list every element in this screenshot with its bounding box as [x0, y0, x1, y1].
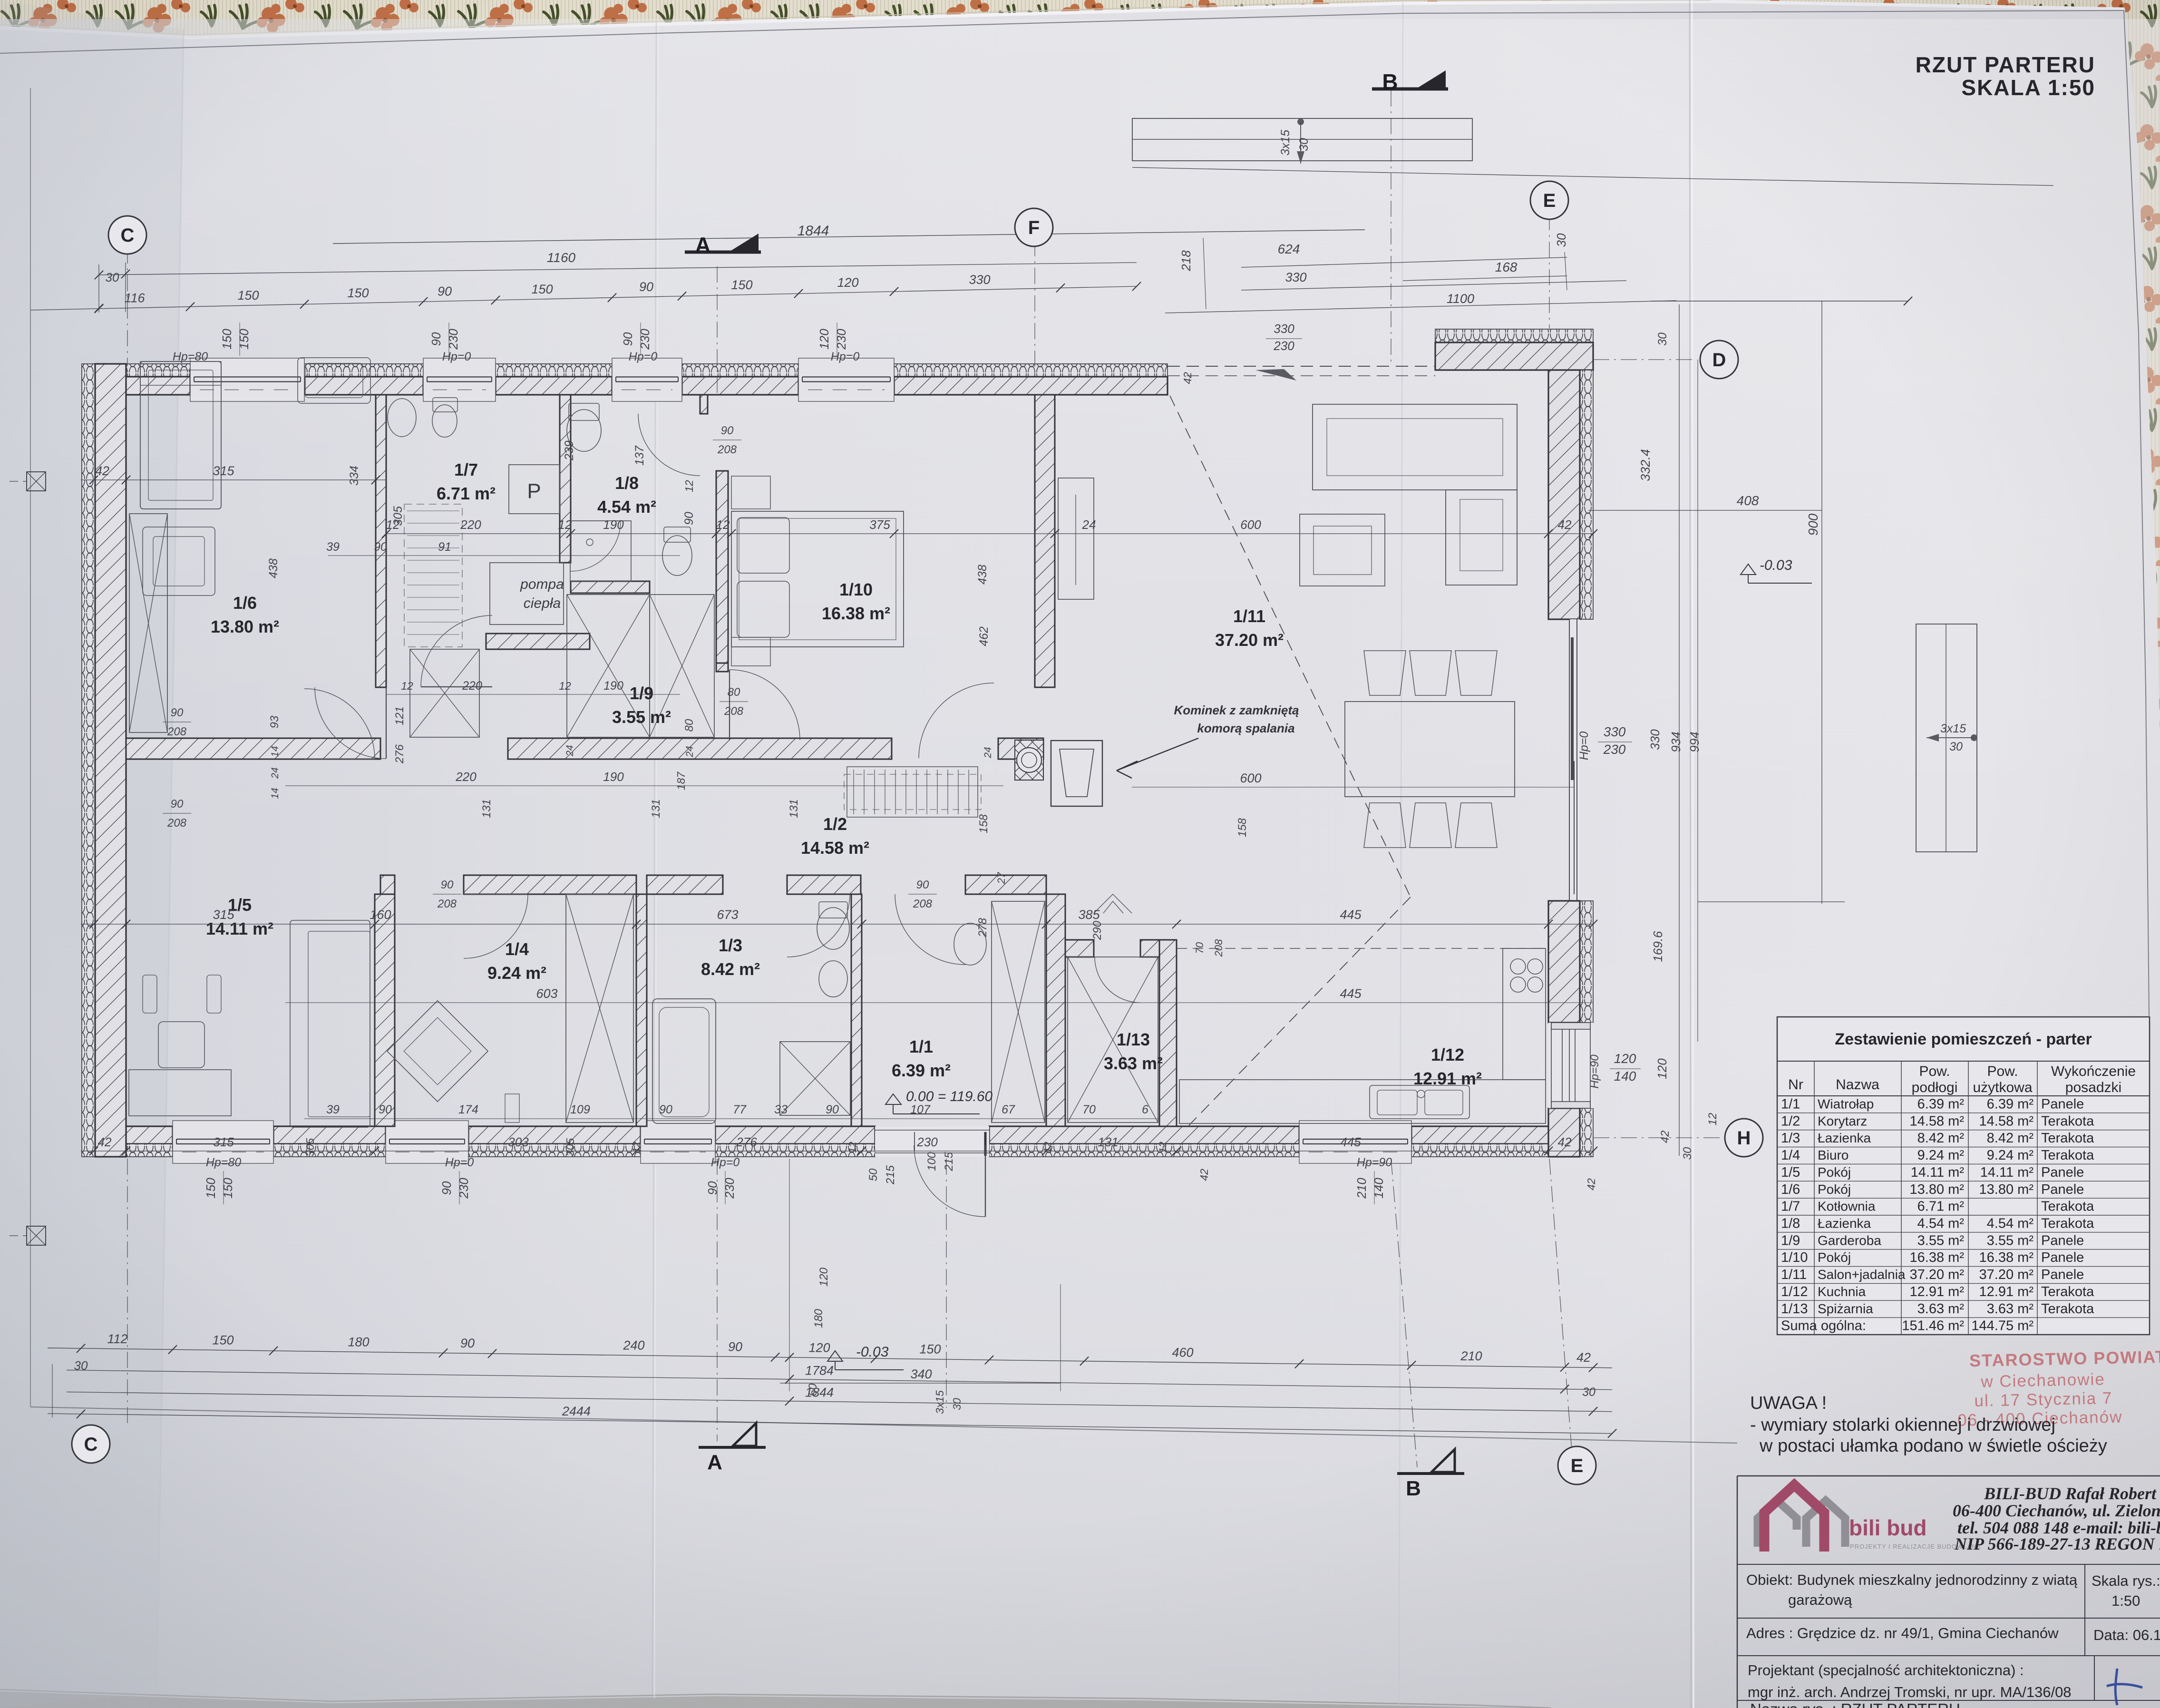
svg-text:6.71 m²: 6.71 m² — [437, 484, 496, 503]
svg-text:BILI-BUD Rafał Robert Biliński: BILI-BUD Rafał Robert Biliński — [1984, 1484, 2160, 1503]
svg-text:1844: 1844 — [805, 1386, 834, 1400]
svg-text:UWAGA !: UWAGA ! — [1750, 1393, 1827, 1413]
svg-text:30: 30 — [1582, 1386, 1596, 1399]
svg-text:208: 208 — [717, 443, 737, 456]
svg-text:24: 24 — [564, 745, 575, 756]
svg-text:4.54 m²: 4.54 m² — [1917, 1216, 1965, 1231]
svg-text:Hp=80: Hp=80 — [173, 350, 208, 363]
svg-text:3x15: 3x15 — [934, 1390, 946, 1414]
svg-text:A: A — [707, 1451, 722, 1474]
svg-text:150: 150 — [220, 329, 234, 350]
svg-text:215: 215 — [884, 1165, 897, 1185]
svg-text:Hp=0: Hp=0 — [629, 350, 658, 363]
svg-text:12: 12 — [1042, 1142, 1053, 1153]
svg-text:14: 14 — [270, 788, 281, 799]
svg-text:215: 215 — [943, 1152, 955, 1171]
svg-text:460: 460 — [1172, 1345, 1193, 1359]
svg-text:462: 462 — [977, 626, 991, 646]
svg-text:39: 39 — [326, 540, 340, 554]
svg-text:1/2: 1/2 — [1781, 1113, 1800, 1129]
svg-text:208: 208 — [437, 898, 457, 910]
svg-text:-0.03: -0.03 — [856, 1344, 889, 1360]
svg-text:27: 27 — [995, 872, 1007, 884]
svg-text:305: 305 — [304, 1138, 316, 1157]
svg-text:6.71 m²: 6.71 m² — [1917, 1199, 1965, 1214]
svg-text:315: 315 — [213, 464, 234, 478]
svg-text:Łazienka: Łazienka — [1818, 1216, 1871, 1231]
svg-text:12: 12 — [558, 517, 572, 532]
svg-text:240: 240 — [623, 1338, 644, 1353]
svg-text:12: 12 — [401, 680, 413, 692]
svg-text:150: 150 — [221, 1178, 235, 1199]
svg-text:D: D — [1712, 350, 1726, 371]
svg-text:445: 445 — [1340, 986, 1362, 1001]
svg-text:F: F — [1028, 217, 1040, 238]
svg-text:Łazienka: Łazienka — [1818, 1131, 1871, 1145]
svg-text:30: 30 — [1949, 740, 1963, 753]
svg-text:H: H — [1737, 1128, 1751, 1149]
svg-text:230: 230 — [1273, 339, 1294, 353]
svg-text:użytkowa: użytkowa — [1973, 1080, 2032, 1095]
svg-text:13.80 m²: 13.80 m² — [1910, 1182, 1965, 1197]
svg-text:42: 42 — [98, 1135, 112, 1149]
svg-text:131: 131 — [480, 799, 493, 818]
svg-text:140: 140 — [1372, 1178, 1386, 1199]
svg-text:107: 107 — [910, 1103, 931, 1116]
svg-text:C: C — [121, 225, 135, 246]
svg-text:150: 150 — [919, 1342, 941, 1357]
svg-text:112: 112 — [107, 1332, 127, 1346]
svg-text:276: 276 — [736, 1135, 757, 1149]
svg-text:30: 30 — [1297, 138, 1311, 151]
svg-text:2444: 2444 — [562, 1404, 591, 1418]
svg-text:42: 42 — [1558, 1135, 1572, 1149]
svg-text:37.20 m²: 37.20 m² — [1215, 630, 1284, 650]
svg-text:B: B — [1406, 1477, 1421, 1500]
svg-text:24: 24 — [1082, 517, 1096, 532]
svg-text:Terakota: Terakota — [2041, 1199, 2094, 1214]
svg-text:208: 208 — [167, 817, 187, 830]
svg-text:1:50: 1:50 — [2111, 1592, 2140, 1609]
svg-text:91: 91 — [438, 540, 451, 554]
svg-text:6.39 m²: 6.39 m² — [1987, 1097, 2034, 1112]
svg-text:109: 109 — [570, 1103, 590, 1116]
svg-text:230: 230 — [446, 329, 460, 350]
svg-text:06-400 Ciechanów, ul. Zielona: 06-400 Ciechanów, ul. Zielona Ścieżka — [1953, 1501, 2160, 1520]
svg-text:90: 90 — [429, 332, 443, 346]
svg-text:9.24 m²: 9.24 m² — [1987, 1148, 2034, 1163]
svg-text:120: 120 — [1614, 1051, 1636, 1066]
svg-text:4.54 m²: 4.54 m² — [597, 497, 656, 517]
svg-text:Terakota: Terakota — [2041, 1301, 2094, 1317]
svg-text:9.24 m²: 9.24 m² — [487, 963, 546, 983]
svg-text:120: 120 — [817, 329, 831, 350]
svg-text:121: 121 — [393, 706, 406, 725]
svg-text:3.55 m²: 3.55 m² — [612, 707, 671, 727]
svg-text:1/13: 1/13 — [1117, 1030, 1150, 1049]
svg-text:90: 90 — [374, 540, 387, 554]
svg-text:305: 305 — [564, 1138, 576, 1157]
svg-text:13.80 m²: 13.80 m² — [211, 617, 279, 636]
svg-text:Data: 06.1: Data: 06.1 — [2093, 1627, 2160, 1643]
svg-text:1844: 1844 — [798, 223, 829, 239]
svg-text:1/5: 1/5 — [1781, 1165, 1800, 1180]
svg-text:Pokój: Pokój — [1818, 1182, 1851, 1197]
svg-text:Kotłownia: Kotłownia — [1818, 1199, 1876, 1214]
svg-text:90: 90 — [659, 1103, 672, 1116]
svg-text:1/10: 1/10 — [1781, 1250, 1808, 1265]
svg-text:150: 150 — [731, 278, 752, 292]
svg-text:1/3: 1/3 — [1781, 1131, 1800, 1146]
svg-text:278: 278 — [976, 917, 989, 937]
svg-text:14.11 m²: 14.11 m² — [1911, 1165, 1965, 1180]
svg-text:24: 24 — [983, 747, 993, 758]
svg-text:90: 90 — [826, 1103, 839, 1116]
svg-text:77: 77 — [733, 1103, 747, 1116]
svg-text:1/7: 1/7 — [454, 460, 478, 479]
svg-text:Skala rys.:: Skala rys.: — [2092, 1572, 2160, 1589]
svg-text:230: 230 — [457, 1178, 471, 1199]
svg-text:Hp=0: Hp=0 — [442, 350, 471, 363]
svg-text:90: 90 — [682, 512, 696, 525]
svg-text:pompa: pompa — [520, 576, 564, 592]
svg-text:180: 180 — [348, 1335, 369, 1349]
svg-text:P: P — [527, 479, 541, 503]
svg-text:13.80 m²: 13.80 m² — [1979, 1182, 2034, 1197]
svg-text:30: 30 — [1681, 1147, 1694, 1160]
svg-text:3.63 m²: 3.63 m² — [1104, 1054, 1163, 1073]
svg-text:Hp=0: Hp=0 — [831, 350, 860, 363]
svg-text:42: 42 — [1198, 1169, 1210, 1181]
svg-text:120: 120 — [1655, 1058, 1669, 1079]
svg-text:Adres : Grędzice dz. nr 49/1,: Adres : Grędzice dz. nr 49/1, Gmina Ciec… — [1746, 1625, 2059, 1641]
svg-text:Terakota: Terakota — [2041, 1284, 2094, 1299]
svg-text:Obiekt: Budynek mieszkalny jed: Obiekt: Budynek mieszkalny jednorodzinny… — [1746, 1571, 2078, 1588]
svg-text:1/2: 1/2 — [823, 814, 847, 834]
svg-text:445: 445 — [1340, 908, 1362, 922]
svg-text:8.42 m²: 8.42 m² — [1917, 1131, 1965, 1146]
svg-text:230: 230 — [834, 329, 848, 350]
svg-text:438: 438 — [976, 565, 989, 585]
svg-text:Korytarz: Korytarz — [1818, 1113, 1867, 1128]
svg-text:1/9: 1/9 — [1781, 1233, 1800, 1248]
svg-text:100: 100 — [925, 1152, 938, 1171]
svg-text:14.58 m²: 14.58 m² — [1910, 1113, 1965, 1129]
svg-text:169.6: 169.6 — [1651, 931, 1665, 962]
svg-text:330: 330 — [1285, 270, 1306, 284]
svg-text:230: 230 — [722, 1178, 737, 1199]
svg-text:140: 140 — [1614, 1069, 1636, 1083]
svg-text:315: 315 — [213, 908, 234, 922]
svg-text:90: 90 — [438, 284, 452, 298]
svg-text:30: 30 — [1656, 332, 1669, 346]
svg-text:1/1: 1/1 — [1781, 1097, 1800, 1112]
svg-text:12: 12 — [1158, 1142, 1168, 1153]
svg-text:131: 131 — [1098, 1135, 1118, 1149]
svg-text:24: 24 — [270, 767, 281, 779]
svg-text:116: 116 — [124, 291, 145, 305]
svg-text:ul. 17 Stycznia 7: ul. 17 Stycznia 7 — [1974, 1389, 2113, 1410]
svg-text:305: 305 — [391, 506, 405, 526]
svg-text:1/6: 1/6 — [233, 593, 257, 613]
svg-text:144.75 m²: 144.75 m² — [1971, 1318, 2034, 1334]
svg-text:408: 408 — [1737, 493, 1759, 508]
svg-text:E: E — [1543, 190, 1556, 211]
svg-text:1160: 1160 — [547, 250, 576, 265]
svg-text:220: 220 — [462, 679, 482, 693]
svg-text:Nazwa: Nazwa — [1836, 1077, 1879, 1093]
svg-text:90: 90 — [441, 878, 454, 891]
svg-text:Terakota: Terakota — [2041, 1131, 2094, 1146]
svg-text:Panele: Panele — [2041, 1182, 2084, 1197]
svg-text:-0.03: -0.03 — [1760, 557, 1792, 573]
svg-text:3x15: 3x15 — [1279, 130, 1292, 156]
svg-text:1/1: 1/1 — [909, 1037, 933, 1056]
svg-text:B: B — [1382, 69, 1398, 94]
svg-text:90: 90 — [705, 1181, 720, 1195]
svg-text:NIP 566-189-27-13 REGON 14292: NIP 566-189-27-13 REGON 14292 — [1954, 1534, 2160, 1553]
svg-text:90: 90 — [639, 280, 653, 294]
svg-text:Panele: Panele — [2041, 1165, 2084, 1180]
svg-text:131: 131 — [650, 799, 662, 818]
svg-text:podłogi: podłogi — [1912, 1080, 1958, 1095]
svg-text:42: 42 — [1558, 517, 1572, 532]
svg-text:131: 131 — [788, 799, 800, 818]
svg-text:Pokój: Pokój — [1818, 1250, 1851, 1265]
svg-text:42: 42 — [1659, 1131, 1672, 1143]
svg-text:190: 190 — [603, 770, 624, 784]
svg-text:1/11: 1/11 — [1233, 606, 1265, 626]
svg-text:bili bud: bili bud — [1849, 1515, 1927, 1540]
svg-text:80: 80 — [683, 719, 696, 732]
svg-text:208: 208 — [1213, 939, 1225, 957]
svg-text:Hp=0: Hp=0 — [1577, 732, 1591, 761]
svg-text:C: C — [84, 1434, 98, 1455]
svg-text:39: 39 — [326, 1103, 340, 1116]
svg-text:0.00 = 119.60: 0.00 = 119.60 — [906, 1089, 992, 1104]
svg-text:Wiatrołap: Wiatrołap — [1818, 1097, 1874, 1112]
svg-text:3.63 m²: 3.63 m² — [1917, 1301, 1965, 1317]
svg-text:600: 600 — [1240, 771, 1261, 785]
svg-text:Hp=90: Hp=90 — [1357, 1156, 1392, 1169]
svg-text:12.91 m²: 12.91 m² — [1910, 1284, 1965, 1299]
svg-text:1/4: 1/4 — [1781, 1148, 1800, 1163]
svg-text:Hp=90: Hp=90 — [1588, 1054, 1601, 1089]
svg-text:1/6: 1/6 — [1781, 1182, 1800, 1197]
svg-text:90: 90 — [621, 332, 635, 346]
svg-text:90: 90 — [439, 1181, 454, 1195]
svg-text:30: 30 — [1554, 233, 1568, 247]
svg-text:w postaci ułamka podano w świe: w postaci ułamka podano w świetle oścież… — [1759, 1436, 2107, 1456]
svg-text:12: 12 — [559, 680, 571, 692]
svg-text:mgr inż. arch. Andrzej Tromski: mgr inż. arch. Andrzej Tromski, nr upr. … — [1748, 1684, 2072, 1700]
svg-text:Panele: Panele — [2041, 1097, 2084, 1112]
svg-text:37.20 m²: 37.20 m² — [1979, 1267, 2034, 1282]
svg-text:150: 150 — [347, 286, 369, 300]
svg-text:16.38 m²: 16.38 m² — [1979, 1250, 2034, 1265]
svg-text:900: 900 — [1806, 513, 1820, 536]
svg-text:375: 375 — [869, 517, 890, 532]
svg-text:42: 42 — [1585, 1178, 1597, 1191]
svg-text:14: 14 — [270, 746, 281, 757]
svg-text:14.11 m²: 14.11 m² — [206, 919, 273, 938]
svg-text:33: 33 — [774, 1103, 788, 1116]
svg-text:208: 208 — [167, 725, 187, 738]
svg-text:1100: 1100 — [1447, 292, 1474, 306]
svg-text:12: 12 — [1706, 1113, 1719, 1126]
svg-text:150: 150 — [237, 288, 259, 303]
svg-text:330: 330 — [969, 273, 990, 287]
svg-text:603: 603 — [536, 986, 557, 1001]
svg-text:1/3: 1/3 — [719, 936, 742, 955]
svg-text:230: 230 — [638, 329, 652, 350]
svg-text:16.38 m²: 16.38 m² — [1910, 1250, 1965, 1265]
svg-text:210: 210 — [1354, 1178, 1369, 1199]
svg-text:208: 208 — [913, 898, 933, 910]
svg-text:218: 218 — [1179, 250, 1193, 272]
svg-text:120: 120 — [837, 275, 858, 290]
svg-text:90: 90 — [171, 706, 184, 719]
svg-text:168: 168 — [1495, 260, 1518, 274]
svg-text:385: 385 — [1078, 908, 1100, 922]
svg-text:1/4: 1/4 — [505, 939, 529, 959]
svg-text:303: 303 — [508, 1135, 529, 1149]
svg-text:16.38 m²: 16.38 m² — [822, 604, 890, 623]
svg-text:150: 150 — [531, 282, 553, 296]
svg-text:290: 290 — [1091, 920, 1104, 940]
svg-text:Pow.: Pow. — [1919, 1064, 1950, 1079]
svg-text:Pokój: Pokój — [1818, 1165, 1851, 1180]
svg-text:Kuchnia: Kuchnia — [1818, 1284, 1866, 1299]
svg-text:330: 330 — [1648, 729, 1662, 750]
svg-text:150: 150 — [237, 329, 251, 350]
svg-text:445: 445 — [1340, 1135, 1361, 1149]
svg-text:12: 12 — [683, 480, 695, 492]
svg-text:- wymiary stolarki okiennej i: - wymiary stolarki okiennej i drzwiowej — [1750, 1415, 2055, 1435]
svg-text:RZUT PARTERU: RZUT PARTERU — [1916, 52, 2095, 77]
svg-text:90: 90 — [460, 1336, 475, 1350]
svg-text:332.4: 332.4 — [1638, 449, 1653, 481]
svg-text:Panele: Panele — [2041, 1267, 2084, 1282]
svg-text:934: 934 — [1669, 732, 1683, 752]
svg-text:67: 67 — [1002, 1103, 1015, 1116]
svg-text:70: 70 — [1194, 942, 1206, 954]
svg-text:Salon+jadalnia: Salon+jadalnia — [1818, 1267, 1906, 1282]
svg-text:6.39 m²: 6.39 m² — [1917, 1097, 1965, 1112]
svg-text:90: 90 — [728, 1339, 742, 1354]
svg-text:1/7: 1/7 — [1781, 1199, 1800, 1214]
svg-text:Pow.: Pow. — [1987, 1064, 2018, 1079]
svg-text:A: A — [695, 233, 710, 257]
svg-text:SKALA 1:50: SKALA 1:50 — [1961, 75, 2095, 100]
svg-text:1/12: 1/12 — [1781, 1284, 1808, 1299]
svg-text:3.55 m²: 3.55 m² — [1987, 1233, 2034, 1248]
svg-text:14.58 m²: 14.58 m² — [1979, 1113, 2034, 1129]
svg-text:Terakota: Terakota — [2041, 1148, 2094, 1163]
svg-text:30: 30 — [951, 1398, 963, 1410]
svg-text:330: 330 — [1274, 322, 1294, 336]
svg-text:12.91 m²: 12.91 m² — [1979, 1284, 2034, 1299]
svg-text:230: 230 — [1603, 742, 1626, 757]
svg-text:600: 600 — [1240, 517, 1261, 532]
svg-text:Suma ogólna:: Suma ogólna: — [1781, 1318, 1866, 1334]
svg-text:50: 50 — [867, 1168, 880, 1181]
svg-text:Projektant (specjalność archit: Projektant (specjalność architektoniczna… — [1748, 1662, 2024, 1679]
svg-text:Biuro: Biuro — [1818, 1148, 1849, 1162]
svg-text:9.24 m²: 9.24 m² — [1917, 1148, 1965, 1163]
svg-text:Terakota: Terakota — [2041, 1113, 2094, 1129]
svg-text:180: 180 — [812, 1308, 825, 1328]
svg-text:190: 190 — [603, 517, 624, 532]
svg-text:4.54 m²: 4.54 m² — [1987, 1216, 2034, 1231]
svg-text:Hp=80: Hp=80 — [206, 1156, 241, 1169]
svg-text:Zestawienie pomieszczeń - part: Zestawienie pomieszczeń - parter — [1835, 1030, 2092, 1048]
svg-text:garażową: garażową — [1788, 1591, 1852, 1608]
svg-text:90: 90 — [916, 878, 929, 891]
svg-text:Spiżarnia: Spiżarnia — [1818, 1301, 1873, 1316]
svg-text:220: 220 — [455, 770, 477, 784]
svg-text:Panele: Panele — [2041, 1233, 2084, 1248]
svg-text:1/12: 1/12 — [1431, 1045, 1464, 1064]
svg-text:120: 120 — [817, 1267, 830, 1287]
svg-text:12: 12 — [847, 1142, 858, 1153]
svg-text:Panele: Panele — [2041, 1250, 2084, 1265]
svg-text:190: 190 — [603, 679, 623, 693]
svg-text:3.55 m²: 3.55 m² — [1917, 1233, 1965, 1248]
svg-text:151.46 m²: 151.46 m² — [1902, 1318, 1964, 1334]
svg-text:334: 334 — [348, 466, 361, 486]
svg-text:Terakota: Terakota — [2041, 1216, 2094, 1231]
svg-text:posadzki: posadzki — [2065, 1080, 2121, 1095]
svg-text:14.58 m²: 14.58 m² — [801, 838, 869, 858]
svg-text:160: 160 — [370, 908, 391, 922]
svg-text:210: 210 — [1460, 1349, 1482, 1363]
svg-text:14.11 m²: 14.11 m² — [1980, 1165, 2034, 1180]
svg-text:Kominek z zamkniętą: Kominek z zamkniętą — [1174, 703, 1299, 717]
svg-text:Hp=0: Hp=0 — [711, 1156, 740, 1169]
svg-text:1/9: 1/9 — [630, 683, 653, 703]
svg-text:276: 276 — [393, 744, 406, 764]
svg-text:E: E — [1571, 1455, 1584, 1476]
svg-text:438: 438 — [267, 558, 280, 578]
svg-text:3x15: 3x15 — [1940, 722, 1966, 735]
svg-text:90: 90 — [721, 424, 734, 437]
svg-text:624: 624 — [1278, 242, 1300, 256]
svg-text:37.20 m²: 37.20 m² — [1910, 1267, 1965, 1282]
svg-text:120: 120 — [808, 1341, 830, 1355]
svg-text:90: 90 — [171, 798, 184, 810]
svg-text:1/11: 1/11 — [1781, 1267, 1807, 1282]
svg-text:30: 30 — [106, 270, 119, 284]
svg-text:8.42 m²: 8.42 m² — [701, 959, 760, 979]
svg-text:Nazwa rys. : RZUT PARTERU: Nazwa rys. : RZUT PARTERU — [1750, 1700, 1960, 1708]
svg-text:208: 208 — [724, 705, 744, 718]
svg-text:158: 158 — [977, 814, 990, 833]
svg-text:174: 174 — [458, 1103, 478, 1116]
svg-text:24: 24 — [684, 746, 695, 757]
svg-text:6: 6 — [1142, 1103, 1148, 1116]
svg-text:673: 673 — [717, 908, 738, 922]
svg-text:Nr: Nr — [1788, 1077, 1803, 1093]
svg-text:239: 239 — [563, 440, 576, 461]
svg-text:158: 158 — [1236, 818, 1249, 837]
svg-text:93: 93 — [268, 715, 281, 728]
svg-text:1/8: 1/8 — [615, 473, 639, 493]
svg-text:42: 42 — [1576, 1350, 1591, 1365]
svg-text:70: 70 — [1082, 1103, 1096, 1116]
svg-text:150: 150 — [212, 1333, 234, 1347]
svg-text:230: 230 — [916, 1135, 938, 1149]
